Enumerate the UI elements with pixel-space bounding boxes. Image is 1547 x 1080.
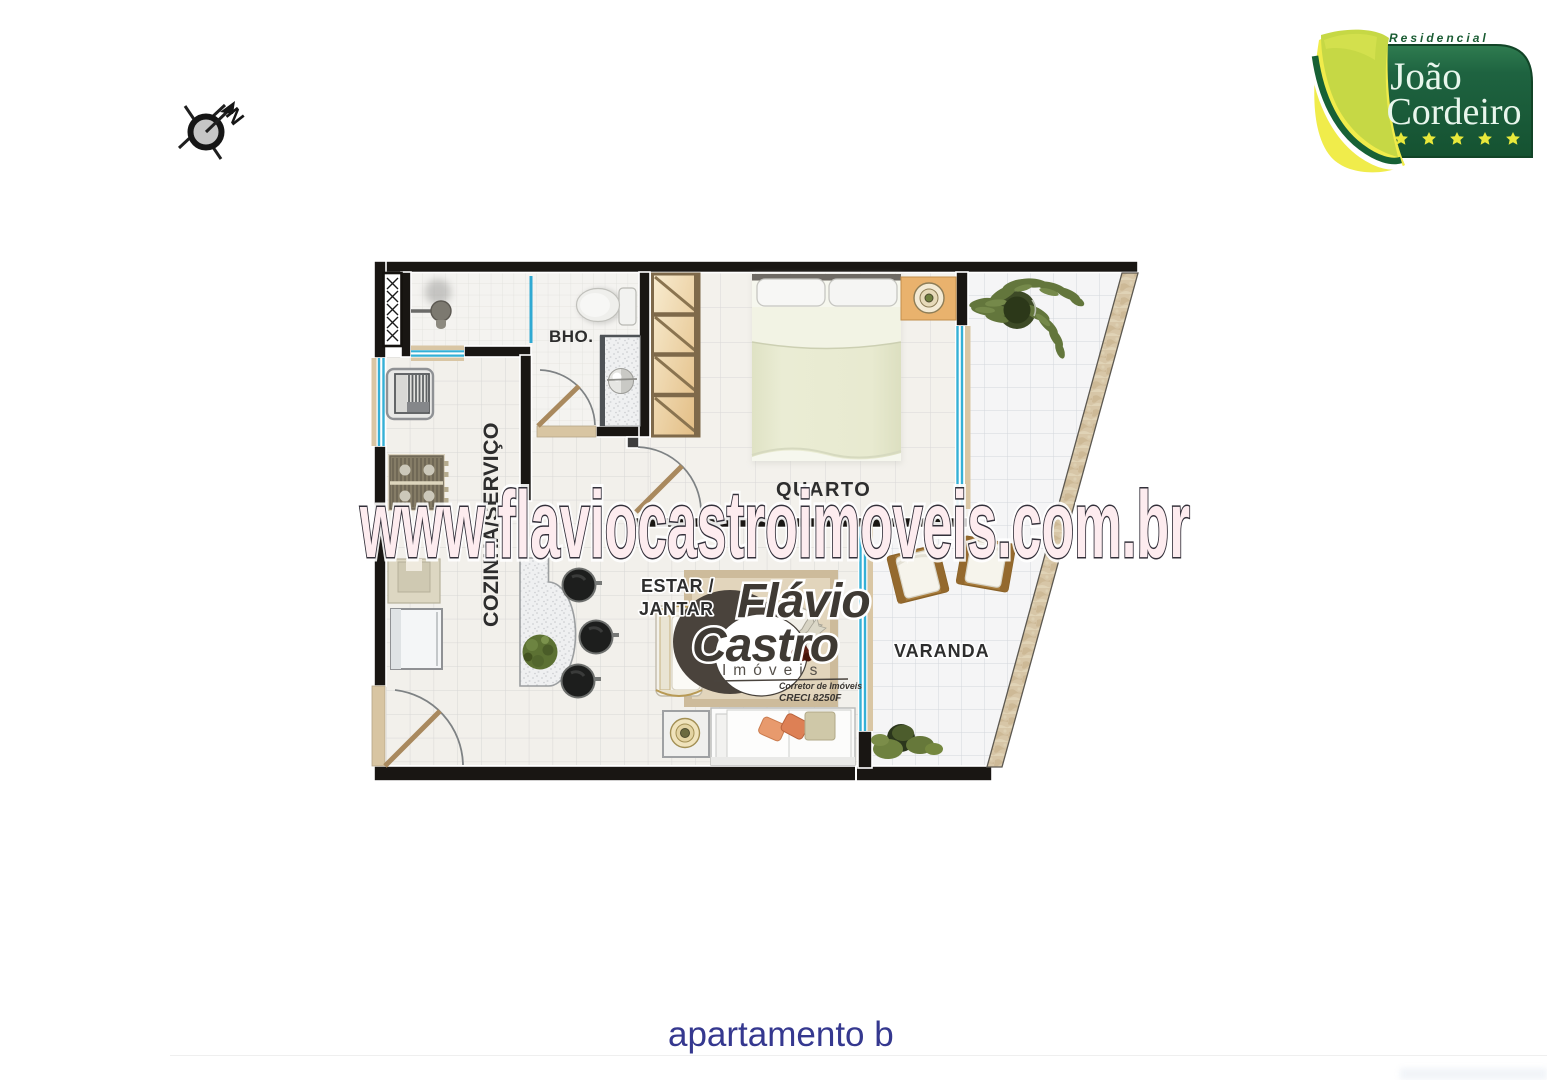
svg-text:Castro: Castro (692, 619, 838, 672)
svg-text:apartamento b: apartamento b (668, 1015, 894, 1054)
svg-text:www.flaviocastroimoveis.com.br: www.flaviocastroimoveis.com.br (359, 472, 1190, 578)
svg-text:ESTAR /: ESTAR / (641, 576, 714, 596)
svg-text:Corretor de Imóveis: Corretor de Imóveis (779, 681, 862, 691)
svg-text:CRECI 8250F: CRECI 8250F (779, 693, 842, 704)
svg-text:Residencial: Residencial (1389, 31, 1489, 45)
svg-text:BHO.: BHO. (549, 327, 594, 346)
svg-text:JANTAR: JANTAR (639, 599, 714, 619)
svg-text:Cordeiro: Cordeiro (1386, 91, 1521, 133)
svg-text:VARANDA: VARANDA (894, 641, 990, 661)
